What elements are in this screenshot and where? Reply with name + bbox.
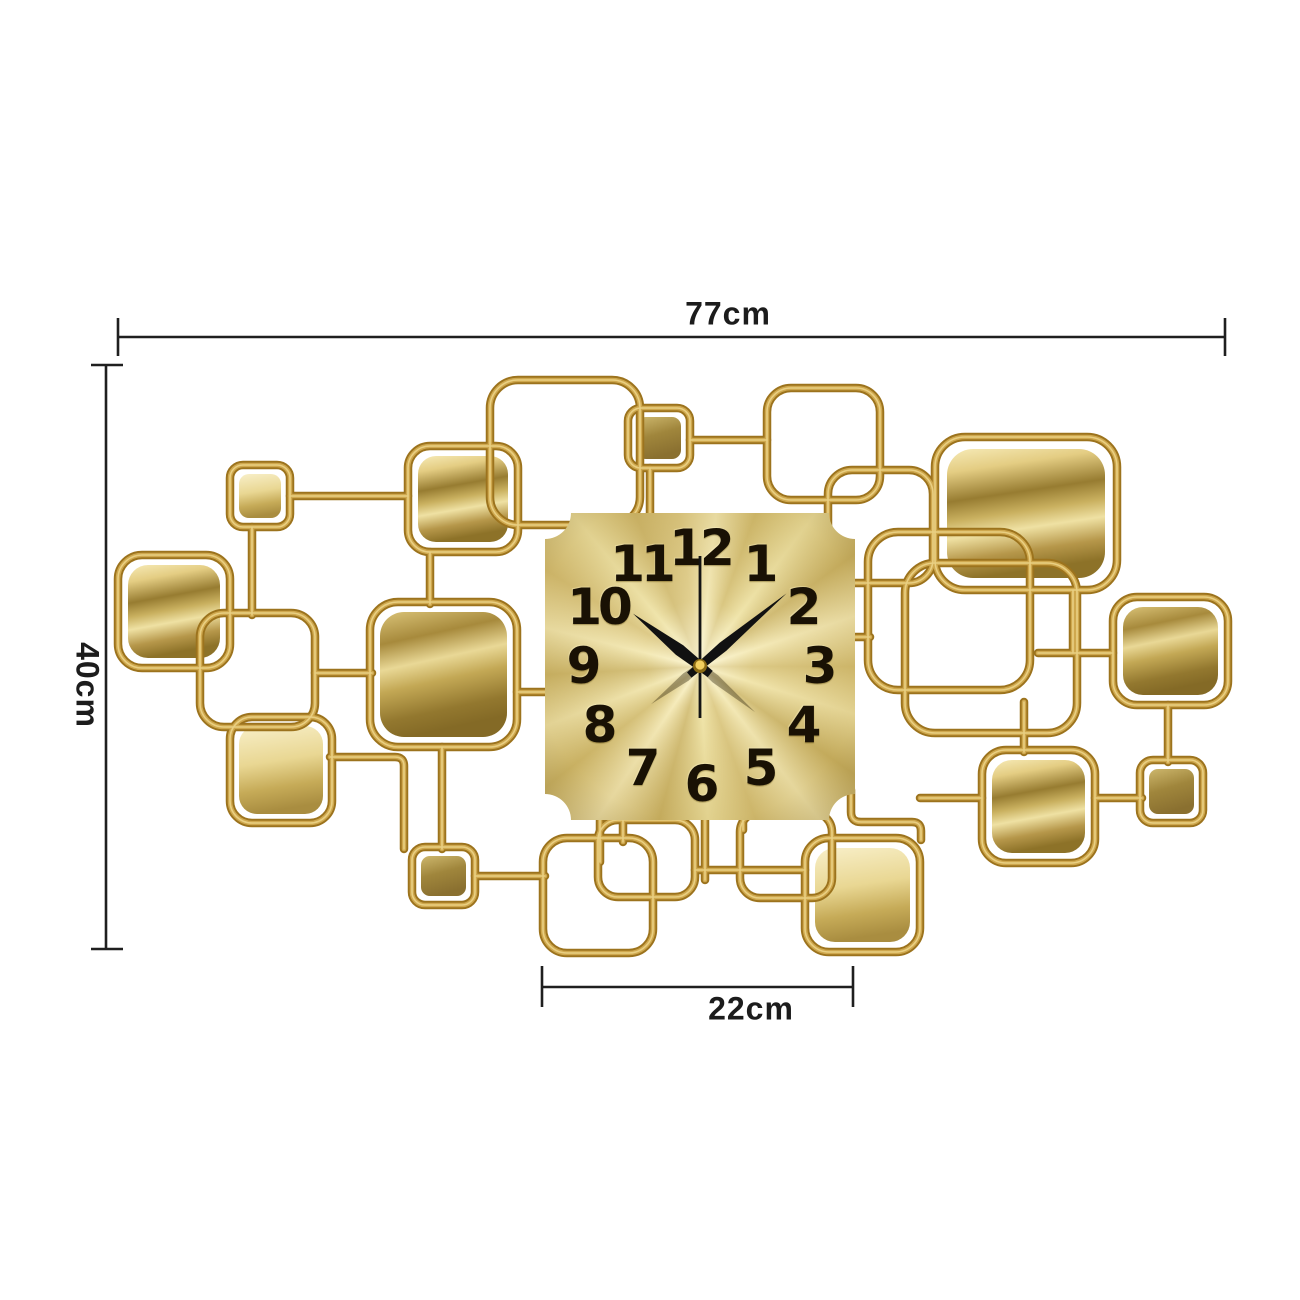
filled-square bbox=[380, 612, 507, 737]
filled-square bbox=[239, 726, 323, 814]
filled-square bbox=[239, 474, 281, 518]
width-dimension-label: 77cm bbox=[685, 296, 771, 333]
clock-hands bbox=[545, 513, 855, 820]
filled-square bbox=[1149, 769, 1194, 814]
center-cap-highlight bbox=[695, 660, 704, 669]
filled-square bbox=[992, 760, 1085, 853]
filled-square bbox=[418, 456, 508, 542]
clock-width-dimension-label: 22cm bbox=[708, 991, 794, 1028]
height-dimension-label: 40cm bbox=[69, 642, 106, 728]
filled-square bbox=[1123, 607, 1218, 695]
filled-square bbox=[128, 565, 220, 658]
filled-square bbox=[421, 856, 466, 896]
product-dimension-image: 12 1 2 3 4 5 6 7 8 9 10 11 77cm 40cm bbox=[0, 0, 1300, 1300]
clock-face: 12 1 2 3 4 5 6 7 8 9 10 11 bbox=[545, 513, 855, 820]
second-hand bbox=[699, 556, 702, 718]
